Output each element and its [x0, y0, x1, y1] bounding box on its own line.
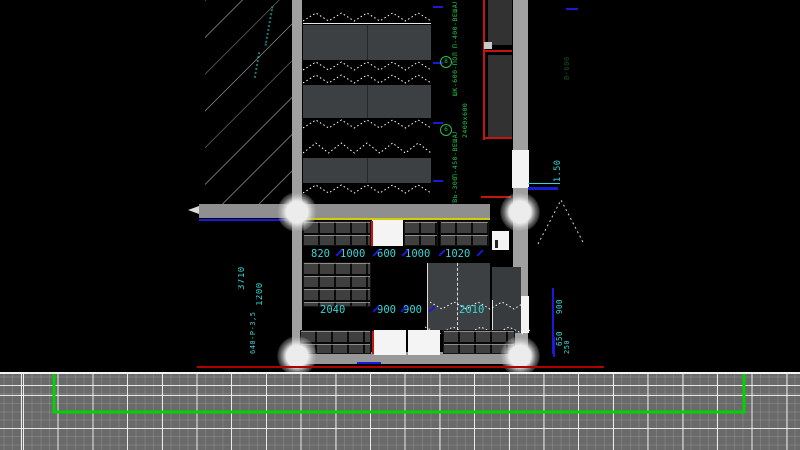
dim-2010: 2010 — [459, 305, 484, 316]
bed-block — [427, 263, 490, 330]
column-grip-2[interactable] — [500, 192, 540, 232]
door-sill-line — [528, 183, 560, 184]
annotation-badge-1: 8 — [440, 56, 452, 68]
annotation-label-2: ШК-600-ПОЛКА — [452, 52, 459, 96]
cad-canvas[interactable]: П-400-ВЕШАЛО ШК-600-ПОЛКА 2400х600 П-450… — [0, 0, 800, 450]
dim-1020: 1020 — [445, 249, 470, 260]
left-dim-note: 640-Р-3,5 — [250, 298, 257, 354]
red-outline-vertical — [483, 0, 485, 140]
leader-arrow — [188, 206, 199, 214]
hang-rail-zigzag-4 — [303, 118, 431, 130]
hatch-area — [205, 0, 293, 206]
red-outline-shelf-2 — [483, 137, 512, 139]
side-annotation-label: В-600 — [564, 28, 571, 80]
partition-slab — [199, 204, 490, 218]
door-width-dim: 1.50 — [554, 146, 563, 182]
dim-arrow-5 — [476, 249, 483, 256]
tall-cabinet-1 — [488, 0, 512, 45]
dim-820: 820 — [311, 249, 330, 260]
appliance-white-bottom-1 — [374, 330, 406, 355]
switch-box-mark — [495, 240, 498, 248]
blue-side-tick — [553, 337, 555, 357]
dim-tick-4 — [433, 180, 443, 182]
cabinet-row1-mid — [404, 221, 438, 246]
appliance-white-top — [372, 220, 403, 246]
profile-polyline — [0, 374, 800, 450]
appliance-white-bottom-2 — [408, 330, 440, 355]
bed-center-dashed — [457, 263, 458, 330]
annotation-badge-2: 6 — [440, 124, 452, 136]
hang-rail-zigzag-1 — [303, 11, 431, 23]
cabinet-row2-left — [303, 262, 371, 307]
tall-cabinet-2 — [488, 55, 512, 137]
door-swing-arc — [536, 198, 588, 248]
shelf-slab-1 — [303, 25, 431, 60]
corner-dim: 250 — [564, 332, 571, 354]
dim-1000a: 1000 — [340, 249, 365, 260]
column-grip-1[interactable] — [277, 192, 317, 232]
cabinet-row1-left — [303, 221, 371, 246]
shelf-slab-2 — [303, 85, 431, 118]
door-opening — [512, 150, 529, 188]
annotation-label-1: П-400-ВЕШАЛО — [452, 2, 459, 48]
top-right-tick — [566, 8, 578, 10]
wall-left — [292, 0, 302, 364]
shelf-edge-line — [303, 23, 431, 24]
red-base-line — [197, 366, 604, 368]
cabinet-row1-right — [440, 221, 489, 246]
bed-edge-line — [427, 263, 428, 330]
left-dim-depth: 1200 — [256, 264, 265, 306]
red-divider-row3 — [372, 331, 374, 354]
dim-2040: 2040 — [320, 305, 345, 316]
cabinet-handle-mark — [484, 42, 492, 49]
red-outline-shelf-1 — [483, 50, 512, 52]
door-threshold-line — [528, 187, 558, 190]
right-dim-lower: 650 — [556, 316, 564, 346]
partition-edge-blue — [199, 219, 287, 221]
left-dim-total: 3710 — [238, 252, 247, 290]
annotation-label-4: П-450-ВЕШАЛО — [452, 132, 459, 178]
column-grip-4[interactable] — [500, 336, 540, 376]
right-dim-upper: 900 — [556, 286, 564, 314]
hang-rail-zigzag-6 — [303, 183, 431, 195]
dim-tick-3 — [433, 122, 443, 124]
hang-rail-zigzag-3 — [303, 73, 431, 85]
hang-rail-zigzag-2 — [303, 60, 431, 72]
annotation-label-3: 2400х600 — [462, 96, 469, 138]
dim-tick-1 — [433, 6, 443, 8]
shelf-slab-3 — [303, 158, 431, 183]
red-divider-row1 — [371, 221, 373, 246]
grid-plane — [0, 372, 800, 450]
hang-rail-zigzag-5 — [303, 141, 431, 155]
column-grip-3[interactable] — [277, 336, 317, 376]
blue-base-segment — [357, 362, 381, 364]
